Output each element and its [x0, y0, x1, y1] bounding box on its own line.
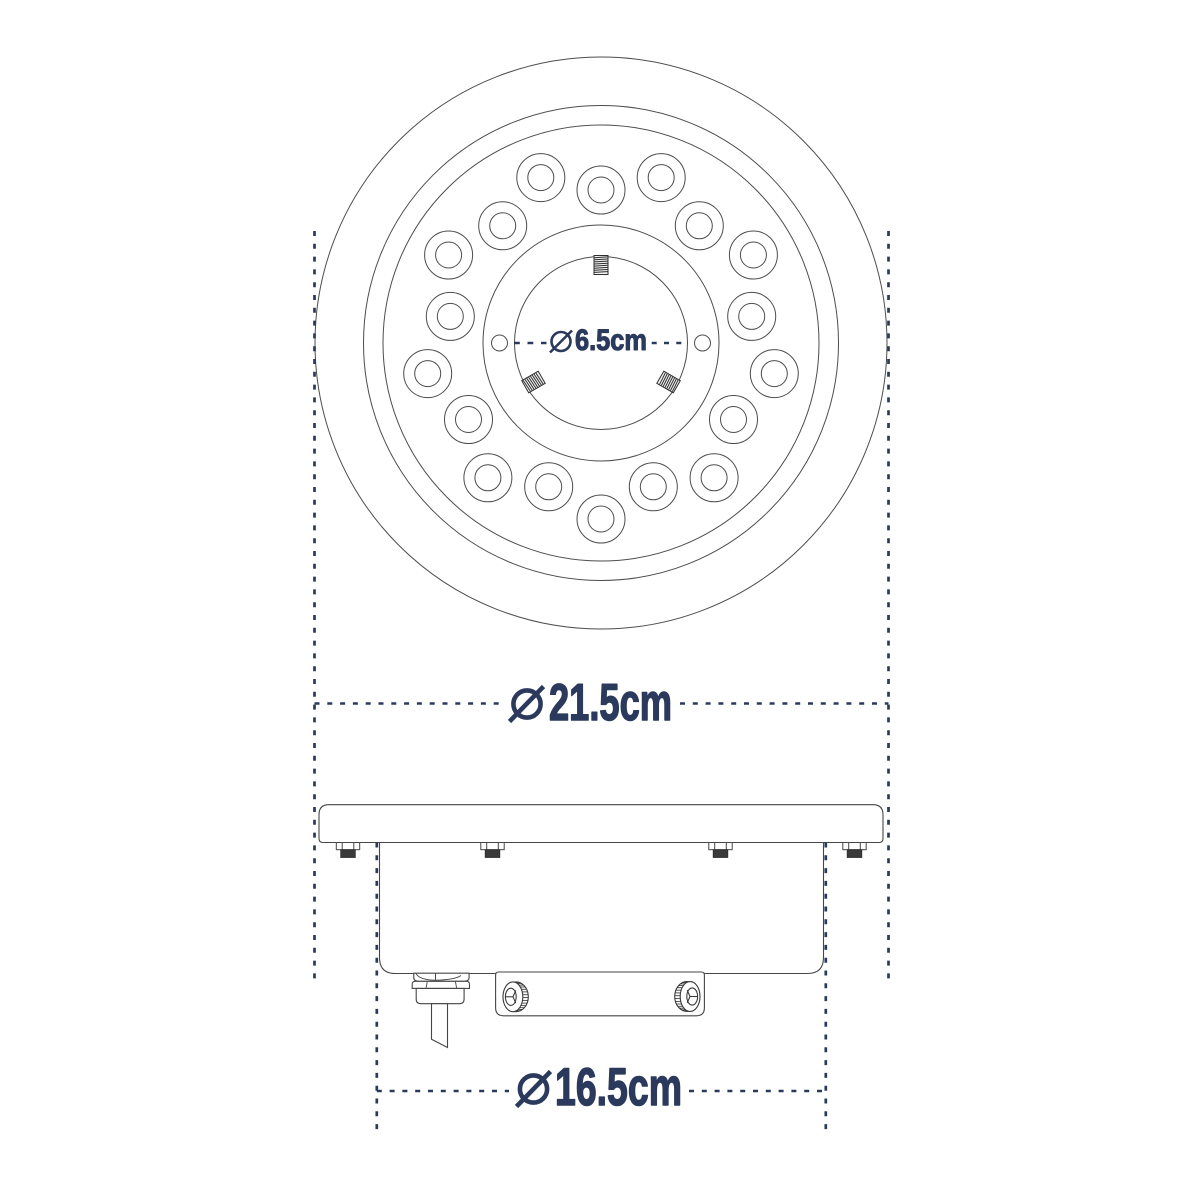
svg-text:16.5cm: 16.5cm — [555, 1058, 682, 1117]
svg-text:6.5cm: 6.5cm — [575, 324, 647, 357]
svg-text:21.5cm: 21.5cm — [549, 674, 672, 732]
